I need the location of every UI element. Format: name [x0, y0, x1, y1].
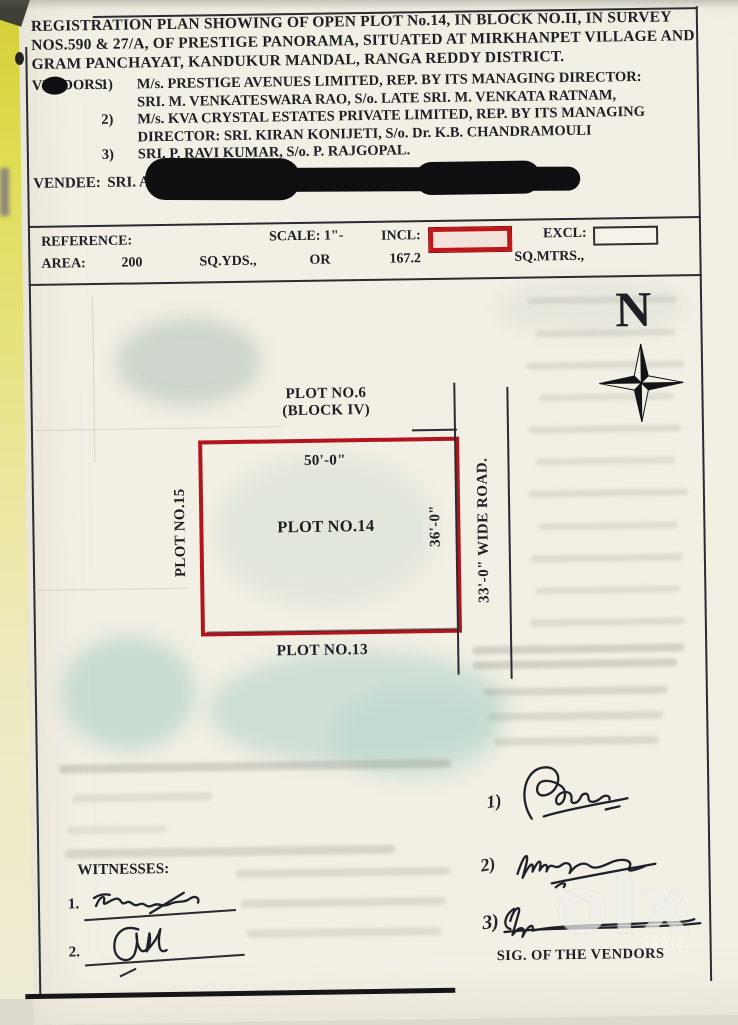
excl-swatch	[593, 226, 658, 246]
area-sqmtrs-value: 167.2	[389, 251, 421, 267]
witness-number: 1.	[68, 896, 80, 913]
reference-label: REFERENCE:	[41, 233, 132, 250]
vendor-number: 1)	[101, 77, 113, 95]
plot-6-block: (BLOCK IV)	[254, 402, 399, 421]
area-sqyds-value: 200	[121, 255, 142, 271]
signature-number: 1)	[485, 790, 503, 813]
hole-punch-mark	[15, 52, 24, 65]
ghost-text-line	[67, 825, 167, 834]
vendor-signature-1	[509, 759, 650, 829]
plot-6-name: PLOT NO.6	[253, 385, 398, 404]
north-label: N	[615, 284, 652, 335]
vendor-number: 2)	[101, 112, 113, 130]
plot-15-label: PLOT NO.15	[144, 452, 216, 613]
excl-label: EXCL:	[543, 226, 587, 243]
scale-label: SCALE: 1"-	[269, 228, 344, 245]
area-label: AREA:	[41, 256, 86, 273]
road-label: 33'-0" WIDE ROAD.	[466, 395, 500, 665]
signature-number: 3)	[481, 910, 500, 935]
sqmtrs-label: SQ.MTRS.,	[514, 249, 584, 266]
sqyds-label: SQ.YDS.,	[199, 254, 256, 271]
incl-label: INCL:	[381, 228, 421, 245]
dimension-right: 36'-0"	[403, 491, 468, 562]
plot-13-label: PLOT NO.13	[242, 641, 402, 661]
redaction-mark	[415, 160, 540, 195]
witness-signature-2	[104, 916, 215, 976]
olx-watermark-sub: INDIA	[646, 941, 686, 951]
scan-shadow	[0, 0, 738, 10]
vendor-number: 3)	[102, 147, 114, 165]
document-title: REGISTRATION PLAN SHOWING OF OPEN PLOT N…	[31, 7, 700, 74]
vendee-label: VENDEE:	[33, 175, 101, 193]
olx-watermark: olx	[556, 868, 692, 944]
plot-6-label: PLOT NO.6 (BLOCK IV)	[253, 385, 398, 421]
scanned-document-page: REGISTRATION PLAN SHOWING OF OPEN PLOT N…	[0, 0, 738, 1004]
edge-smudge-artifact	[0, 168, 9, 216]
or-label: OR	[309, 253, 330, 269]
witness-number: 2.	[69, 944, 81, 961]
compass-rose-icon	[598, 342, 685, 423]
vendee-name: SRI. A	[107, 174, 150, 192]
incl-swatch	[429, 227, 511, 252]
